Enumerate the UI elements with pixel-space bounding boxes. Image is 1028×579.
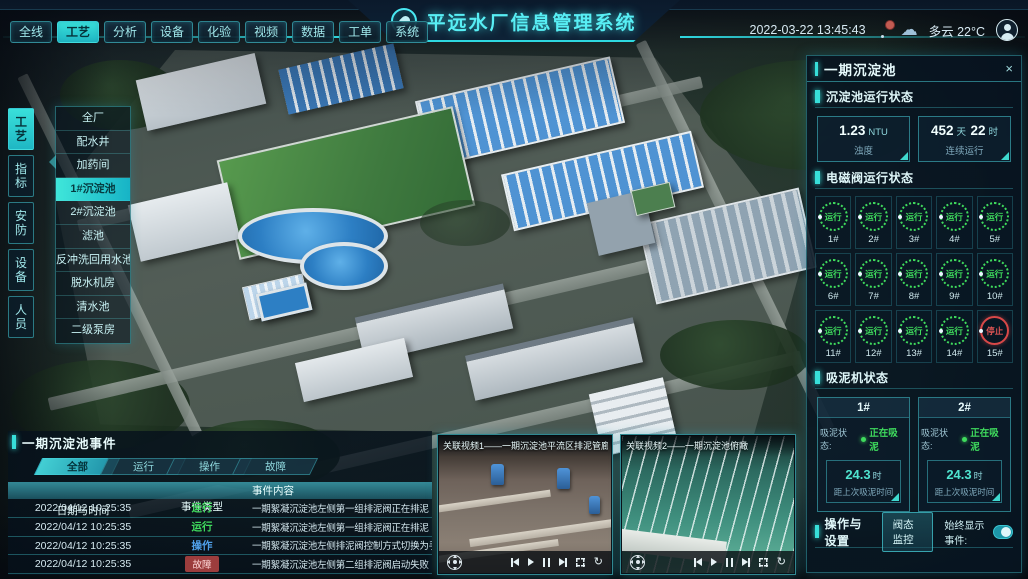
bell-icon[interactable]: [877, 24, 890, 36]
valve-ring: 运行: [819, 202, 848, 231]
process-submenu: 全厂 配水井 加药间 1#沉淀池 2#沉淀池 滤池 反冲洗回用水池 脱水机房 清…: [55, 106, 131, 344]
toggle-knob: [1001, 527, 1011, 537]
video-controls: [622, 551, 794, 573]
sidebar-tab-gongyi[interactable]: 工艺: [8, 108, 34, 150]
alert-badge: [885, 20, 895, 30]
valve-widget[interactable]: 运行11#: [815, 310, 851, 363]
valve-widget[interactable]: 运行6#: [815, 253, 851, 306]
panel-title: 一期沉淀池: [824, 59, 897, 79]
pump: [589, 496, 600, 514]
menu-item-1-chendianchi[interactable]: 1#沉淀池: [56, 178, 130, 202]
valve-ring: 运行: [859, 202, 888, 231]
repeat-icon[interactable]: [777, 557, 786, 568]
nav-tab-gongdan[interactable]: 工单: [339, 21, 381, 43]
pause-icon[interactable]: [726, 558, 733, 567]
close-icon[interactable]: ×: [1005, 62, 1013, 75]
section-accent: [815, 525, 819, 538]
valve-widget[interactable]: 运行2#: [855, 196, 891, 249]
repeat-icon[interactable]: [594, 557, 603, 568]
cloud-icon: [901, 20, 918, 40]
section-accent: [815, 90, 820, 103]
valve-ring: 运行: [899, 202, 928, 231]
valve-ring: 运行: [819, 259, 848, 288]
avatar-icon[interactable]: [996, 19, 1018, 41]
sidebar-tabs: 工艺 指标 安防 设备 人员: [8, 108, 34, 338]
section-title-run-status: 沉淀池运行状态: [826, 88, 914, 105]
uptime-hours: 22: [970, 123, 985, 138]
nav-tab-gongyi[interactable]: 工艺: [57, 21, 99, 43]
valve-ring: 运行: [819, 316, 848, 345]
page-title: 平远水厂信息管理系统: [426, 8, 636, 35]
skip-forward-icon[interactable]: [559, 558, 567, 567]
valve-widget[interactable]: 运行14#: [936, 310, 972, 363]
section-title-valves: 电磁阀运行状态: [826, 169, 914, 186]
suction-machine-id: 1#: [818, 398, 909, 418]
nav-tab-shipin[interactable]: 视频: [245, 21, 287, 43]
sidebar-tab-shebei[interactable]: 设备: [8, 249, 34, 291]
title-accent: [12, 435, 16, 449]
menu-item-quanchang[interactable]: 全厂: [56, 107, 130, 131]
nav-tab-shuju[interactable]: 数据: [292, 21, 334, 43]
menu-item-lvchi[interactable]: 滤池: [56, 225, 130, 249]
fullscreen-icon[interactable]: [576, 558, 585, 567]
title-accent: [815, 62, 818, 76]
video-controls: [439, 551, 611, 573]
video-panel-1: 关联视频1——一期沉淀池平流区排泥管廊: [437, 434, 613, 575]
valve-ring: 运行: [980, 202, 1009, 231]
video-title: 关联视频1——一期沉淀池平流区排泥管廊: [443, 439, 608, 452]
video-panel-2: 关联视频2——一期沉淀池俯瞰: [620, 434, 796, 575]
uptime-card: 452天 22时 连续运行: [918, 116, 1011, 162]
main-nav: 全线 工艺 分析 设备 化验 视频 数据 工单 系统: [10, 21, 428, 43]
section-accent: [815, 371, 820, 384]
valve-monitor-button[interactable]: 阀态监控: [882, 512, 934, 552]
nav-tab-fenxi[interactable]: 分析: [104, 21, 146, 43]
suction-machine-card-2: 2# 吸泥状态: 正在吸泥 24.3时 距上次吸泥时间: [918, 397, 1011, 512]
pump: [557, 468, 570, 489]
event-row[interactable]: 2022/04/12 10:25:35 故障 一期絮凝沉淀池左侧第二组排泥阀启动…: [8, 555, 432, 574]
uptime-label: 连续运行: [945, 143, 983, 157]
uptime-days: 452: [931, 123, 954, 138]
valve-ring: 运行: [940, 202, 969, 231]
events-tabs: 全部 运行 操作 故障: [38, 458, 432, 475]
suction-timer: 24.3时 距上次吸泥时间: [927, 460, 1002, 503]
weather-display: 多云 22°C: [929, 21, 985, 40]
suction-state: 正在吸泥: [970, 425, 1008, 453]
skip-forward-icon[interactable]: [742, 558, 750, 567]
valve-widget[interactable]: 运行9#: [936, 253, 972, 306]
column-header-content: 事件内容: [246, 482, 432, 499]
skip-back-icon[interactable]: [511, 558, 519, 567]
nav-tab-quanxian[interactable]: 全线: [10, 21, 52, 43]
menu-item-2-chendianchi[interactable]: 2#沉淀池: [56, 201, 130, 225]
pump: [491, 464, 504, 485]
valve-widget-stopped[interactable]: 停止15#: [977, 310, 1013, 363]
sidebar-tab-anfang[interactable]: 安防: [8, 202, 34, 244]
menu-item-peishuijing[interactable]: 配水井: [56, 131, 130, 155]
skip-back-icon[interactable]: [694, 558, 702, 567]
valve-ring: 运行: [940, 259, 969, 288]
play-icon[interactable]: [528, 558, 534, 566]
detail-panel: 一期沉淀池 × 沉淀池运行状态 1.23NTU 浊度 452天 22时 连续运行…: [806, 55, 1022, 573]
valve-ring: 运行: [980, 259, 1009, 288]
turbidity-card: 1.23NTU 浊度: [817, 116, 910, 162]
valve-widget[interactable]: 运行7#: [855, 253, 891, 306]
turbidity-value: 1.23: [839, 123, 865, 138]
valve-widget[interactable]: 运行1#: [815, 196, 851, 249]
section-accent: [815, 171, 820, 184]
valve-widget[interactable]: 运行3#: [896, 196, 932, 249]
events-title: 一期沉淀池事件: [22, 433, 117, 452]
fullscreen-icon[interactable]: [759, 558, 768, 567]
event-type-fault: 故障: [158, 540, 246, 579]
valve-ring: 运行: [859, 259, 888, 288]
ptz-dpad-icon[interactable]: [630, 555, 645, 570]
pause-icon[interactable]: [543, 558, 550, 567]
menu-item-erjibengfang[interactable]: 二级泵房: [56, 319, 130, 343]
nav-tab-shebei[interactable]: 设备: [151, 21, 193, 43]
suction-machine-card-1: 1# 吸泥状态: 正在吸泥 24.3时 距上次吸泥时间: [817, 397, 910, 512]
valve-widget[interactable]: 运行8#: [896, 253, 932, 306]
valve-ring: 运行: [899, 259, 928, 288]
turbidity-label: 浊度: [854, 143, 873, 157]
section-title-ops: 操作与设置: [825, 515, 869, 549]
valve-ring-stopped: 停止: [980, 316, 1009, 345]
menu-item-jiayaojian[interactable]: 加药间: [56, 154, 130, 178]
header-right: 2022-03-22 13:45:43 多云 22°C: [750, 19, 1018, 41]
app-window: 平远水厂信息管理系统 全线 工艺 分析 设备 化验 视频 数据 工单 系统 20…: [0, 0, 1028, 579]
events-tab-fault[interactable]: 故障: [232, 458, 318, 475]
valve-widget[interactable]: 运行12#: [855, 310, 891, 363]
valve-widget[interactable]: 运行5#: [977, 196, 1013, 249]
video-title: 关联视频2——一期沉淀池俯瞰: [626, 439, 791, 452]
show-events-toggle[interactable]: [993, 525, 1013, 539]
valve-ring: 运行: [899, 316, 928, 345]
sidebar-tab-renyuan[interactable]: 人员: [8, 296, 34, 338]
valve-ring: 运行: [940, 316, 969, 345]
suction-state: 正在吸泥: [869, 425, 907, 453]
green-dot-icon: [962, 437, 967, 442]
suction-machine-id: 2#: [919, 398, 1010, 418]
valve-grid: 运行1# 运行2# 运行3# 运行4# 运行5# 运行6# 运行7# 运行8# …: [815, 196, 1013, 363]
menu-item-fanchongxi[interactable]: 反冲洗回用水池: [56, 249, 130, 273]
green-dot-icon: [861, 437, 866, 442]
suction-timer: 24.3时 距上次吸泥时间: [826, 460, 901, 503]
ptz-dpad-icon[interactable]: [447, 555, 462, 570]
show-events-label: 始终显示事件:: [944, 517, 988, 547]
valve-widget[interactable]: 运行10#: [977, 253, 1013, 306]
events-panel: 一期沉淀池事件 全部 运行 操作 故障 日期与时间 事件类型 事件内容 2022…: [8, 431, 432, 575]
valve-widget[interactable]: 运行13#: [896, 310, 932, 363]
datetime-display: 2022-03-22 13:45:43: [750, 23, 866, 37]
menu-item-tuoshuijifang[interactable]: 脱水机房: [56, 272, 130, 296]
valve-widget[interactable]: 运行4#: [936, 196, 972, 249]
play-icon[interactable]: [711, 558, 717, 566]
nav-tab-xitong[interactable]: 系统: [386, 21, 428, 43]
menu-item-qingshuichi[interactable]: 清水池: [56, 296, 130, 320]
section-title-suction: 吸泥机状态: [826, 369, 889, 386]
sidebar-tab-zhibiao[interactable]: 指标: [8, 155, 34, 197]
valve-ring: 运行: [859, 316, 888, 345]
nav-tab-huayan[interactable]: 化验: [198, 21, 240, 43]
